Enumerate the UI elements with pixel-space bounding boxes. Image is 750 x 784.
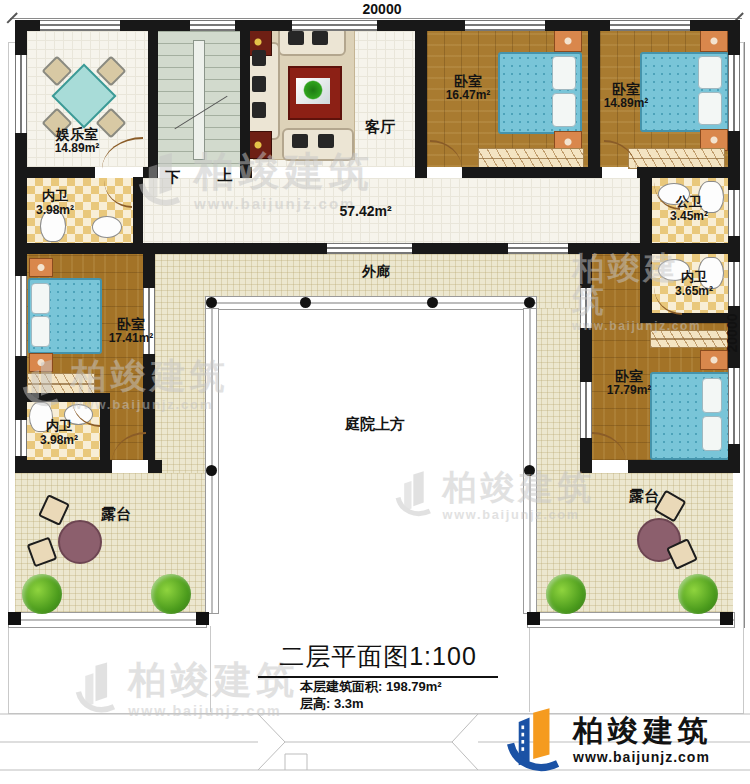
brand-logo-icon (505, 702, 565, 778)
wall (133, 177, 143, 243)
railing-post (720, 612, 733, 625)
window (40, 20, 120, 31)
window (190, 20, 235, 31)
terrace-right-label: 露台 (613, 487, 675, 504)
room-name: 卧室 (588, 368, 670, 384)
dimension-right: 20000 (724, 303, 740, 363)
floor-height-line: 层高: 3.3m (300, 695, 364, 713)
nightstand (29, 258, 53, 277)
wall (155, 243, 252, 254)
wall (637, 167, 740, 178)
room-name: 娱乐室 (27, 126, 127, 142)
drawing-scale: 1:100 (409, 642, 477, 670)
sofa-cushion (252, 50, 266, 66)
stairs-up-label: 上 (212, 166, 238, 183)
pillow (552, 93, 576, 127)
tree (22, 574, 62, 614)
drawing-title-text: 二层平面图 (279, 642, 409, 670)
terrace-left-railing (8, 612, 207, 628)
pillow (702, 416, 722, 451)
sofa-cushion (318, 134, 334, 148)
courtyard-void (217, 308, 523, 640)
sofa-cushion (292, 134, 308, 148)
room-area: 17.41m² (90, 332, 172, 346)
window (15, 276, 27, 356)
window (728, 190, 740, 236)
brand-logo: 柏竣建筑 www.baijunjz.com (505, 702, 713, 778)
railing-post (527, 612, 540, 625)
corridor-right-arm (535, 308, 580, 473)
stair-handrail (193, 40, 205, 160)
room-label-bedroom2: 卧室 14.89m² (585, 81, 667, 111)
stairs-down-label: 下 (160, 168, 186, 185)
dimension-line-right (744, 42, 745, 628)
pillow (552, 56, 576, 90)
window (610, 20, 690, 31)
sink (92, 216, 122, 238)
sofa-cushion (312, 31, 328, 45)
terrace-table (58, 520, 102, 564)
window (465, 20, 545, 31)
column (206, 297, 217, 308)
room-name: 公卫 (650, 195, 728, 210)
floor-height-label: 层高: (300, 696, 330, 711)
plant (303, 80, 323, 100)
wall (100, 401, 110, 460)
brand-url: www.baijunjz.com (573, 749, 713, 765)
room-label-bath-right: 内卫 3.65m² (653, 270, 735, 299)
floor-area-label: 本层建筑面积: (300, 679, 382, 694)
wall (628, 460, 740, 473)
room-label-entertainment: 娱乐室 14.89m² (27, 126, 127, 156)
terrace-left-label: 露台 (85, 505, 147, 522)
wall (143, 167, 158, 178)
wardrobe (27, 373, 95, 395)
room-area: 3.98m² (18, 434, 100, 448)
room-area: 14.89m² (27, 142, 127, 156)
wall (240, 20, 250, 167)
courtyard-railing-left (205, 308, 219, 614)
wall (15, 243, 155, 254)
pillow (31, 316, 50, 347)
room-label-bedroom1: 卧室 16.47m² (427, 73, 509, 103)
dimension-top: 20000 (352, 1, 412, 17)
wardrobe (478, 148, 584, 169)
wall (592, 243, 740, 254)
drawing-title: 二层平面图1:100 (258, 640, 498, 678)
sofa-cushion (252, 76, 266, 92)
floor-plan-canvas: 20000 20000 (0, 0, 750, 784)
pillow (698, 56, 722, 89)
room-area: 3.45m² (650, 210, 728, 224)
room-name: 内卫 (15, 189, 95, 204)
wardrobe (650, 330, 728, 348)
room-label-bedroom-right: 卧室 17.79m² (588, 368, 670, 398)
floor-area-line: 本层建筑面积: 198.79m² (300, 678, 442, 696)
nightstand (554, 30, 582, 52)
column (524, 465, 535, 476)
room-area: 16.47m² (427, 89, 509, 103)
window (728, 368, 740, 444)
room-name: 卧室 (585, 81, 667, 97)
room-name: 内卫 (18, 419, 100, 434)
room-area: 3.65m² (653, 285, 735, 299)
room-name: 卧室 (90, 316, 172, 332)
wall (462, 167, 602, 178)
sofa-cushion (252, 102, 266, 118)
pillow (698, 92, 722, 125)
window (327, 243, 412, 254)
floor-area-value: 198.79m² (386, 679, 442, 694)
wall (415, 20, 427, 178)
wall (15, 167, 95, 178)
wall (252, 243, 327, 254)
wall (15, 460, 112, 473)
wall (143, 253, 155, 460)
wall (640, 253, 652, 313)
tree (546, 574, 586, 614)
room-name: 内卫 (653, 270, 735, 285)
courtyard-label: 庭院上方 (325, 415, 425, 432)
tree (678, 574, 718, 614)
wall (580, 460, 592, 473)
wardrobe (628, 148, 725, 169)
column (206, 465, 217, 476)
nightstand (29, 353, 53, 372)
floor-height-value: 3.3m (334, 696, 364, 711)
dimension-line-top (10, 18, 742, 19)
wall (412, 243, 508, 254)
corridor-label: 外廊 (345, 263, 407, 279)
window (508, 243, 568, 254)
window (728, 55, 740, 131)
wall (148, 460, 162, 473)
railing-post (196, 612, 209, 625)
terrace-right-railing (527, 612, 735, 628)
courtyard-railing-top (205, 296, 537, 310)
courtyard-railing-right (523, 308, 537, 614)
wall (148, 20, 158, 167)
room-label-living: 客厅 (345, 118, 415, 135)
room-area: 3.98m² (15, 204, 95, 218)
brand-name: 柏竣建筑 (573, 716, 713, 746)
room-label-bedroom-left: 卧室 17.41m² (90, 316, 172, 346)
tree (151, 574, 191, 614)
column (300, 297, 311, 308)
window (15, 55, 27, 133)
room-label-bath-left: 内卫 3.98m² (18, 419, 100, 448)
hall-area-label: 57.42m² (318, 203, 413, 219)
room-name: 卧室 (427, 73, 509, 89)
column (427, 297, 438, 308)
sofa-cushion (288, 31, 304, 45)
room-area: 17.79m² (588, 384, 670, 398)
column (524, 297, 535, 308)
room-label-public-bath: 公卫 3.45m² (650, 195, 728, 224)
room-area: 14.89m² (585, 97, 667, 111)
room-label-bath-topleft: 内卫 3.98m² (15, 189, 95, 218)
pillow (702, 378, 722, 413)
window (292, 20, 377, 31)
wall (240, 167, 252, 178)
pillow (31, 283, 50, 314)
nightstand (700, 30, 728, 52)
window (580, 288, 592, 328)
railing-post (8, 612, 21, 625)
